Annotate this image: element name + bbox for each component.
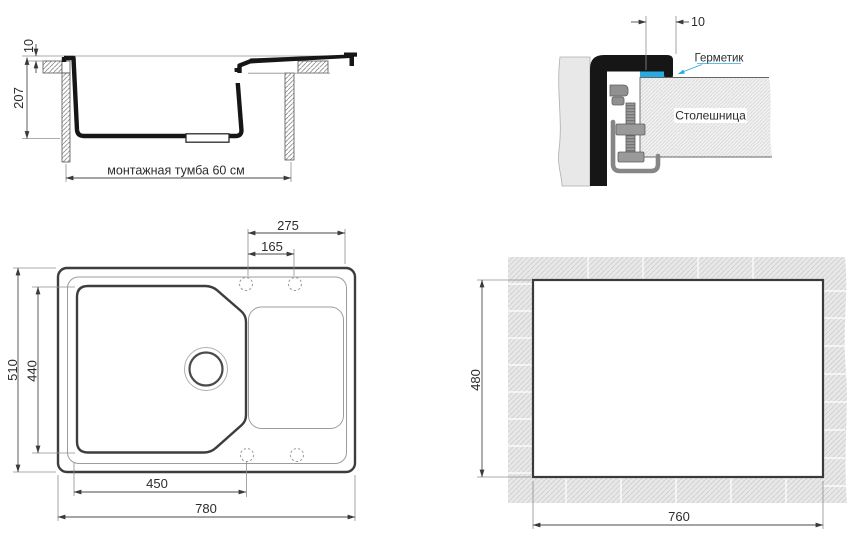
dim-overall-depth-label: 510 <box>5 359 20 381</box>
bowl-left-wall <box>64 57 186 136</box>
rim-end-tab <box>350 57 355 67</box>
sealant-callout: Герметик <box>678 53 745 75</box>
sealant-label: Герметик <box>695 53 745 65</box>
tap-hole-top-left <box>240 278 253 291</box>
countertop-block-right <box>298 61 328 73</box>
dim-cutout-width-label: 760 <box>668 509 690 524</box>
dim-cabinet-label: монтажная тумба 60 см <box>107 164 244 178</box>
drain-hole <box>190 353 223 386</box>
mount-detail-view: Столешница 10 Герметик <box>559 15 772 186</box>
dim-overhang-label: 10 <box>691 15 705 29</box>
dim-depth-label: 207 <box>11 87 26 109</box>
dim-rim-height-label: 10 <box>22 39 36 53</box>
dim-holes-span-label: 275 <box>277 218 299 233</box>
side-section-view: 10 207 монтажная тумба 60 см <box>11 39 357 182</box>
sealant-arrow-line <box>681 65 702 73</box>
hatch-strip-left <box>508 257 533 503</box>
hatch-strip-top <box>533 257 823 280</box>
clamp-catch <box>610 85 628 96</box>
sealant-strip <box>640 72 664 78</box>
countertop-label: Столешница <box>675 109 746 123</box>
tap-hole-bottom-right <box>291 449 304 462</box>
clamp-catch-lower <box>612 97 624 105</box>
countertop-section: Столешница <box>640 78 772 158</box>
top-view: 275 165 510 440 450 <box>5 218 355 521</box>
tap-hole-bottom-left <box>241 449 254 462</box>
sink-wall-section <box>559 57 590 186</box>
clamp-nut-lower <box>618 152 644 162</box>
dim-overall-width: 780 <box>58 475 355 521</box>
cutout-rectangle <box>533 280 823 477</box>
countertop-block-left <box>43 61 62 73</box>
tap-hole-top-right <box>289 278 302 291</box>
dim-cabinet: монтажная тумба 60 см <box>66 162 291 182</box>
drainboard-step <box>240 61 252 73</box>
wall-break-gap <box>230 72 242 83</box>
drawing-canvas: 10 207 монтажная тумба 60 см Столешница <box>0 0 860 535</box>
clamp-nut-upper <box>616 124 645 135</box>
hatch-strip-right-wavy <box>823 257 847 503</box>
dim-holes-pitch-label: 165 <box>261 239 283 254</box>
rim-channel-left <box>62 61 70 73</box>
drain-recess <box>186 134 229 142</box>
dim-overall-width-label: 780 <box>195 501 217 516</box>
cutout-view: 480 760 <box>468 257 847 529</box>
hatch-strip-bottom <box>533 477 823 503</box>
rim-end-cap <box>344 53 357 57</box>
sealant-arrow-head <box>678 70 685 75</box>
cabinet-post-right <box>285 73 294 160</box>
technical-drawing-sheet: 10 207 монтажная тумба 60 см Столешница <box>0 0 860 535</box>
dim-cutout-depth-label: 480 <box>468 369 483 391</box>
dim-bowl-depth-label: 440 <box>25 360 40 382</box>
cabinet-post-left <box>62 73 70 162</box>
dim-bowl-width-label: 450 <box>146 476 168 491</box>
cabinet-and-countertop-hatching <box>43 61 328 162</box>
